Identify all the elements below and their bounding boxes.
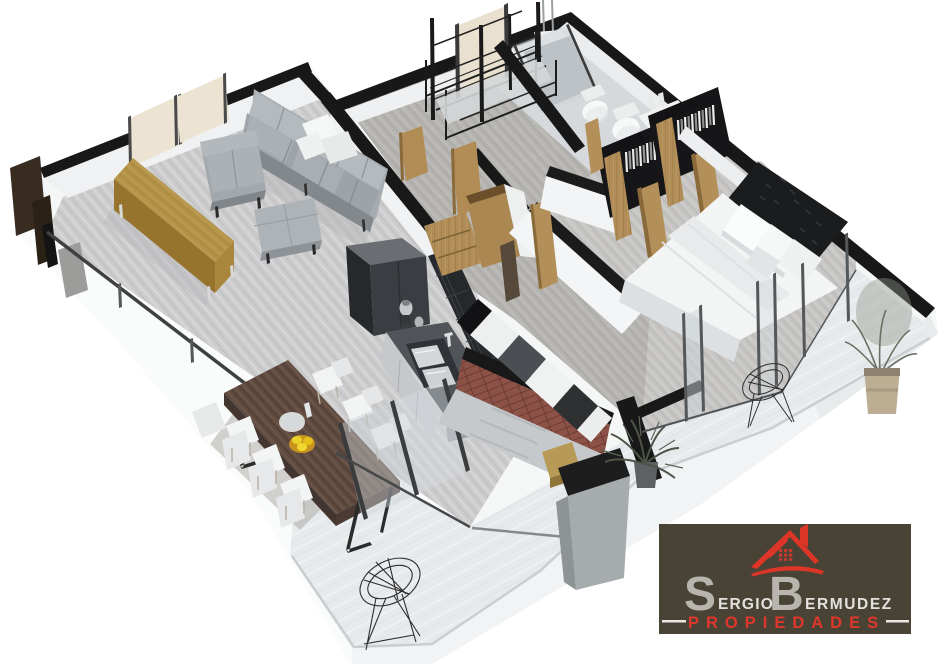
svg-text:ERMUDEZ: ERMUDEZ [805, 596, 893, 613]
svg-text:PROPIEDADES: PROPIEDADES [688, 614, 885, 632]
svg-text:ERGIO: ERGIO [718, 596, 774, 613]
